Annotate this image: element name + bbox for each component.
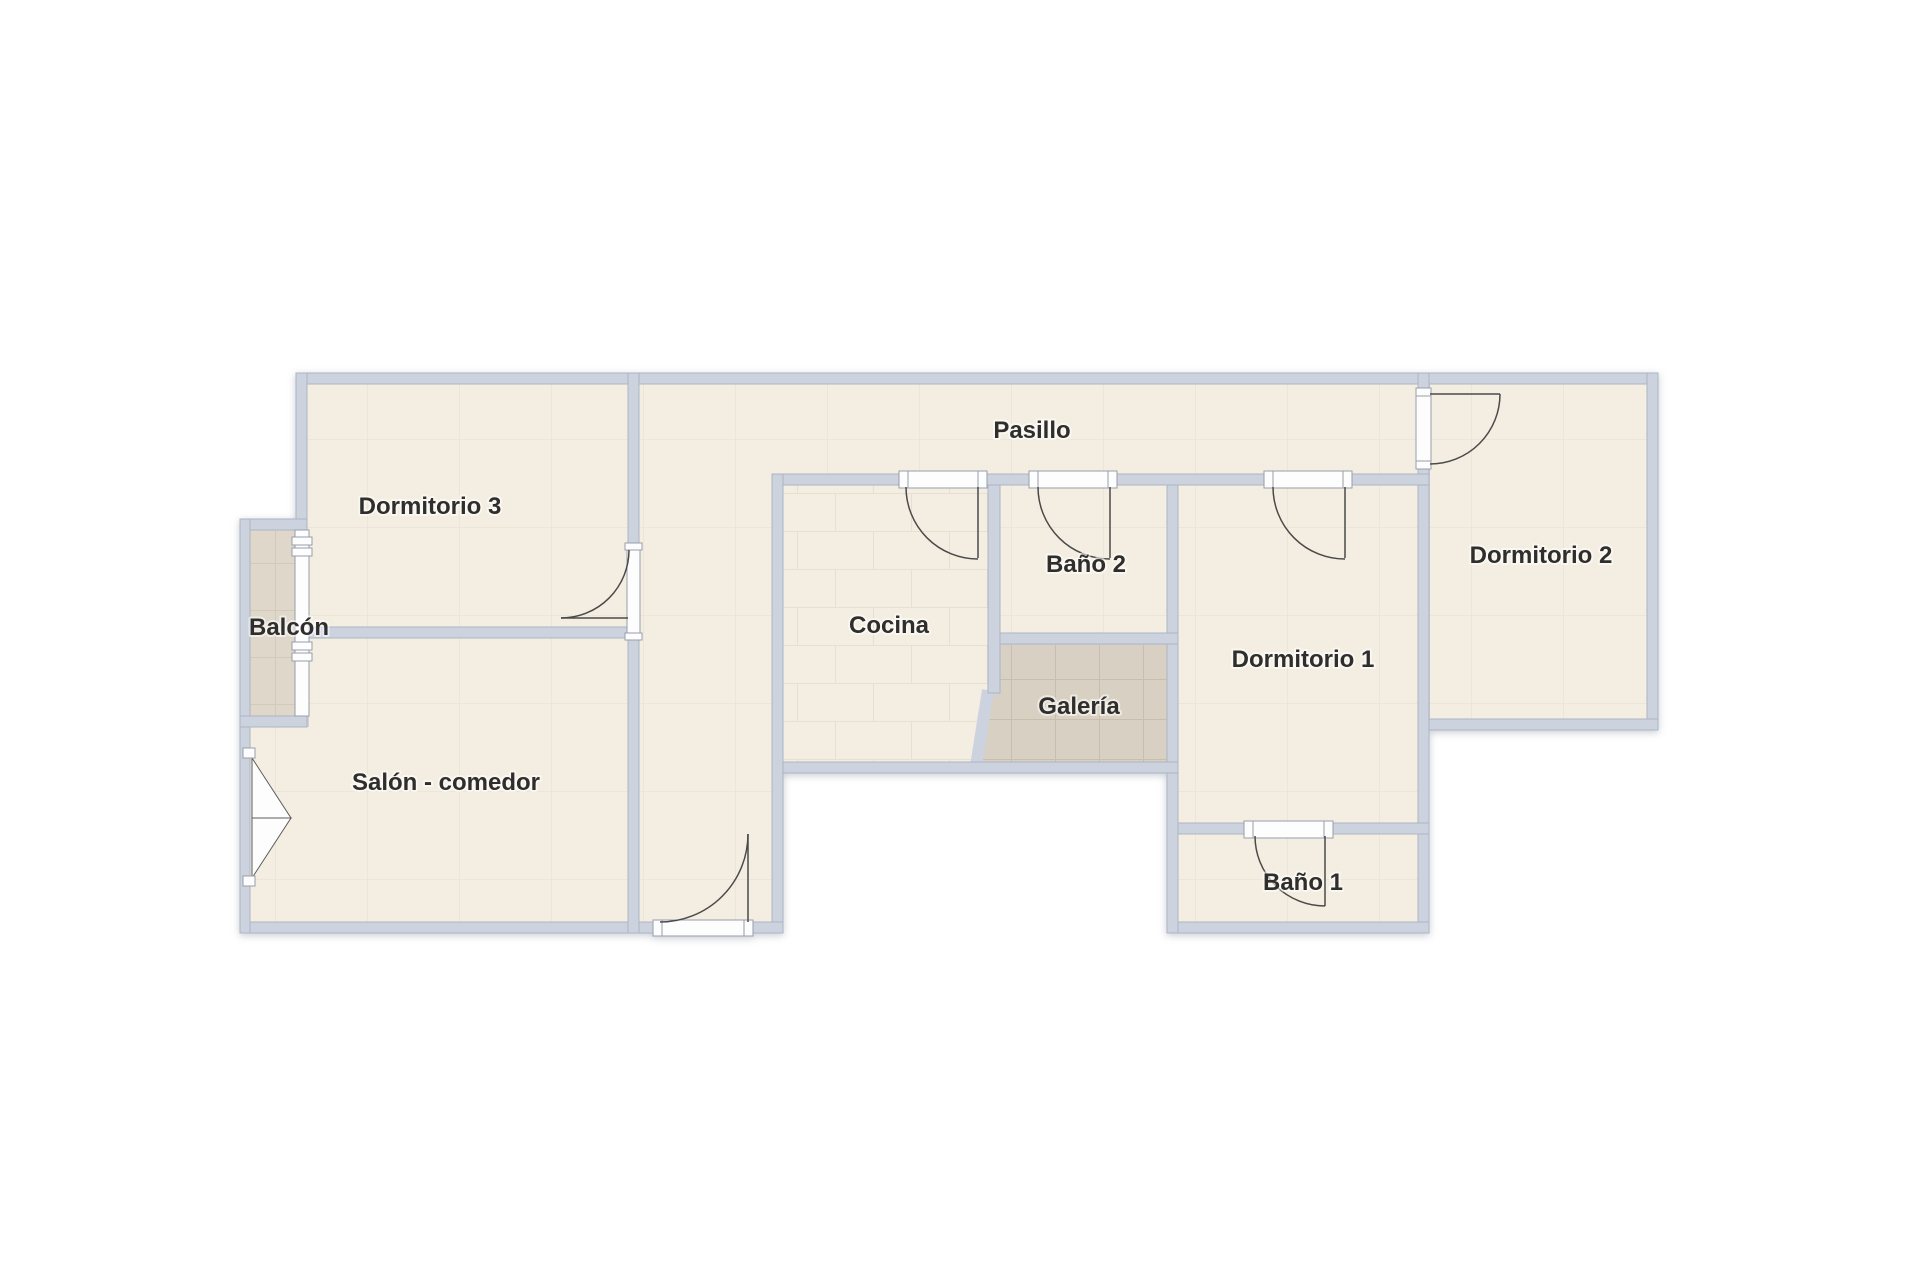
floor-plan-canvas: Pasillo Dormitorio 3 Balcón Salón - come… — [0, 0, 1920, 1280]
wall-segment-bano1-bottom — [1167, 922, 1429, 933]
room-label-dormitorio-1: Dormitorio 1 — [1232, 646, 1375, 673]
wall-segment-dorm3-left — [296, 373, 307, 530]
floors — [250, 384, 1647, 922]
doorframe-cap — [625, 633, 642, 640]
room-label-galeria: Galería — [1038, 693, 1120, 720]
doorframe-bano-1 — [1244, 821, 1332, 838]
floor-plan-page: Pasillo Dormitorio 3 Balcón Salón - come… — [0, 0, 1920, 1280]
doorframe-cap — [1029, 471, 1038, 488]
doorframe-cap — [1416, 461, 1431, 469]
wall-segment-top — [296, 373, 1658, 384]
wall-segment-right-outer — [1647, 373, 1658, 730]
wall-segment-hall-left — [628, 373, 639, 933]
wall-segment-dorm1-left — [1167, 474, 1178, 933]
room-label-pasillo: Pasillo — [993, 417, 1070, 444]
doorframe-cap — [978, 471, 987, 488]
wall-segment-cocina-bano2 — [988, 474, 1000, 693]
room-label-dormitorio-2: Dormitorio 2 — [1470, 542, 1613, 569]
doorframe-bano-2 — [1029, 471, 1117, 488]
wall-segment-dormitorio2-bottom — [1418, 719, 1658, 730]
doorframe-cap — [1264, 471, 1273, 488]
plan-body — [240, 373, 1658, 936]
doorframe-cap — [1343, 471, 1352, 488]
wall-segment-hall-right — [772, 474, 783, 933]
doorframe-cap — [1244, 821, 1253, 838]
wall-segment-bano2-galeria — [988, 633, 1178, 644]
room-label-cocina: Cocina — [849, 612, 930, 639]
doorframe-entrance — [653, 920, 753, 936]
balcony-window-mullion — [292, 653, 312, 661]
balcony-window-mullion — [292, 537, 312, 545]
doorframe-cap — [1324, 821, 1333, 838]
wall-segment-cocina-galeria-bottom — [772, 762, 1178, 773]
doorframe-cap — [243, 748, 255, 758]
wall-segment-balcon-bottom — [240, 716, 307, 727]
room-label-dormitorio-3: Dormitorio 3 — [359, 493, 502, 520]
doorframe-cap — [744, 920, 753, 936]
doorframe-dormitorio-2 — [1416, 388, 1431, 469]
room-label-bano-1: Baño 1 — [1263, 869, 1343, 896]
doorframe-cap — [899, 471, 908, 488]
balcony-window-mullion — [292, 642, 312, 650]
doorframe-cocina — [899, 471, 987, 488]
doorframe-dormitorio-1 — [1264, 471, 1352, 488]
room-label-balcon: Balcón — [249, 614, 329, 641]
room-label-bano-2: Baño 2 — [1046, 551, 1126, 578]
room-label-salon-comedor: Salón - comedor — [352, 769, 540, 796]
balcony-window-mullion — [292, 548, 312, 556]
wall-segment-dorm3-salon — [296, 627, 639, 638]
doorframe-cap — [625, 543, 642, 550]
doorframe-cap — [243, 876, 255, 886]
doorframe-cap — [1416, 388, 1431, 396]
doorframe-cap — [1108, 471, 1117, 488]
